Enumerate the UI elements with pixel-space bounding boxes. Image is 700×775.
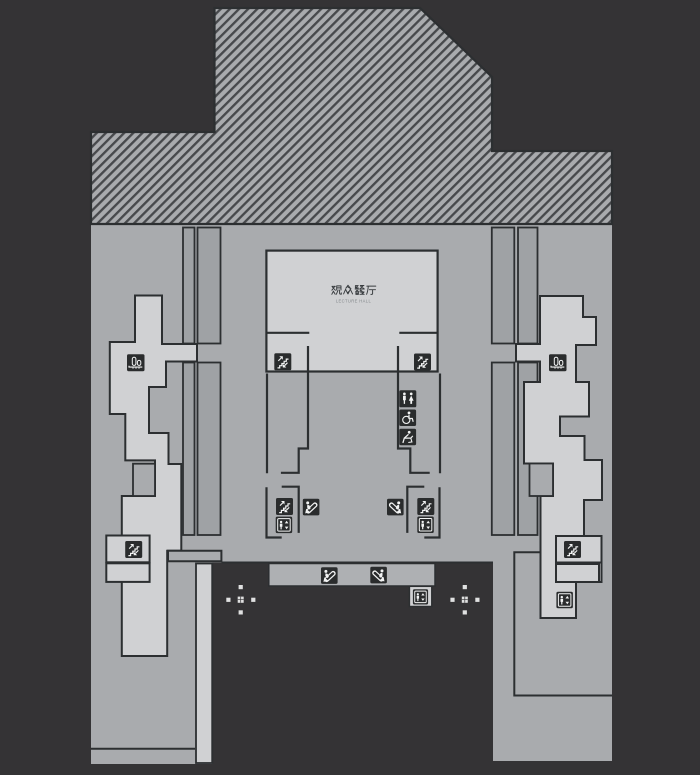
svg-text:LECTURE HALL: LECTURE HALL (336, 299, 372, 304)
